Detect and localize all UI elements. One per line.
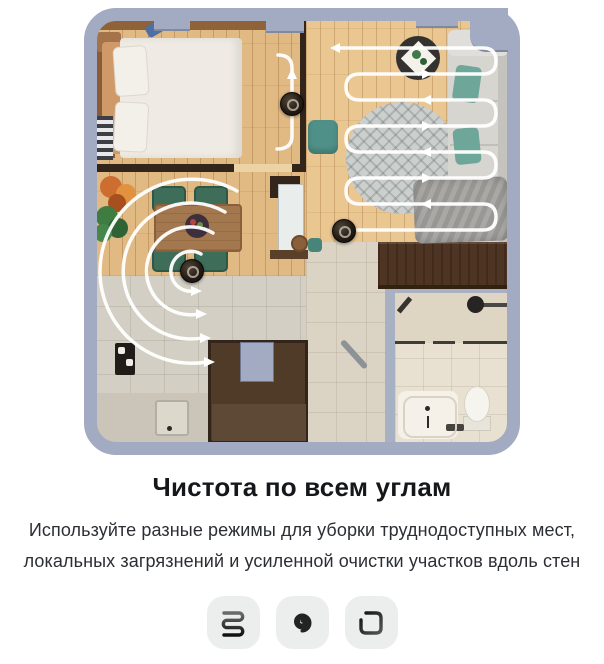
teal-cushion: [452, 64, 483, 103]
burner: [118, 347, 125, 354]
perimeter-path-icon: [354, 606, 388, 640]
toilet-bowl: [464, 386, 490, 422]
plant-on-table: [412, 50, 421, 59]
fruit: [190, 219, 196, 225]
wall-nub: [416, 8, 458, 28]
page-subtitle: Используйте разные режимы для уборки тру…: [0, 515, 604, 577]
shower-head: [467, 296, 484, 313]
robot-vacuum: [180, 259, 204, 283]
pillow: [112, 45, 149, 97]
green-plant: [94, 224, 112, 242]
shower-zone-floor: [395, 293, 508, 343]
shower-arm: [482, 303, 508, 307]
ladder-rack: [97, 116, 113, 160]
pillow: [113, 101, 150, 153]
bedroom-door-opening: [234, 164, 292, 172]
tub-handle: [427, 416, 429, 428]
potted-plant-small: [291, 235, 308, 252]
page-title: Чистота по всем углам: [0, 472, 604, 503]
teal-cushion: [452, 127, 482, 166]
bathtub-inner: [403, 396, 457, 438]
zigzag-mode-button[interactable]: [207, 596, 260, 649]
fruit: [197, 222, 203, 228]
corner-wall-block: [470, 8, 508, 52]
bedroom-bottom-wall: [96, 164, 234, 172]
robot-vacuum: [280, 92, 304, 116]
teal-planter: [308, 238, 322, 252]
cleaning-modes-row: [0, 596, 604, 649]
wall-nub: [154, 8, 190, 31]
bathroom-wall-left: [385, 283, 395, 443]
wardrobe: [378, 242, 508, 289]
subtitle-line-1: Используйте разные режимы для уборки тру…: [29, 520, 575, 540]
entry-wall-cap: [240, 342, 274, 382]
gray-blanket: [413, 176, 509, 243]
wall-nub: [266, 8, 304, 33]
floor-plan-illustration: [84, 8, 520, 455]
wall-segment: [292, 164, 306, 172]
plant-on-table: [420, 58, 427, 65]
burner: [126, 359, 133, 366]
faucet: [167, 426, 172, 431]
subtitle-line-2: локальных загрязнений и усиленной очистк…: [24, 551, 581, 571]
kitchen-sink: [155, 400, 189, 436]
spiral-path-icon: [285, 606, 319, 640]
glass-partition: [433, 341, 455, 344]
teal-pouf: [308, 120, 338, 154]
spiral-mode-button[interactable]: [276, 596, 329, 649]
glass-partition: [395, 341, 425, 344]
glass-partition: [463, 341, 508, 344]
promo-card: Чистота по всем углам Используйте разные…: [0, 0, 604, 664]
entry-floor: [212, 404, 306, 441]
perimeter-mode-button[interactable]: [345, 596, 398, 649]
kitchen-counter: [96, 393, 208, 443]
tub-faucet: [425, 406, 430, 411]
zigzag-path-icon: [216, 606, 250, 640]
robot-vacuum: [332, 219, 356, 243]
